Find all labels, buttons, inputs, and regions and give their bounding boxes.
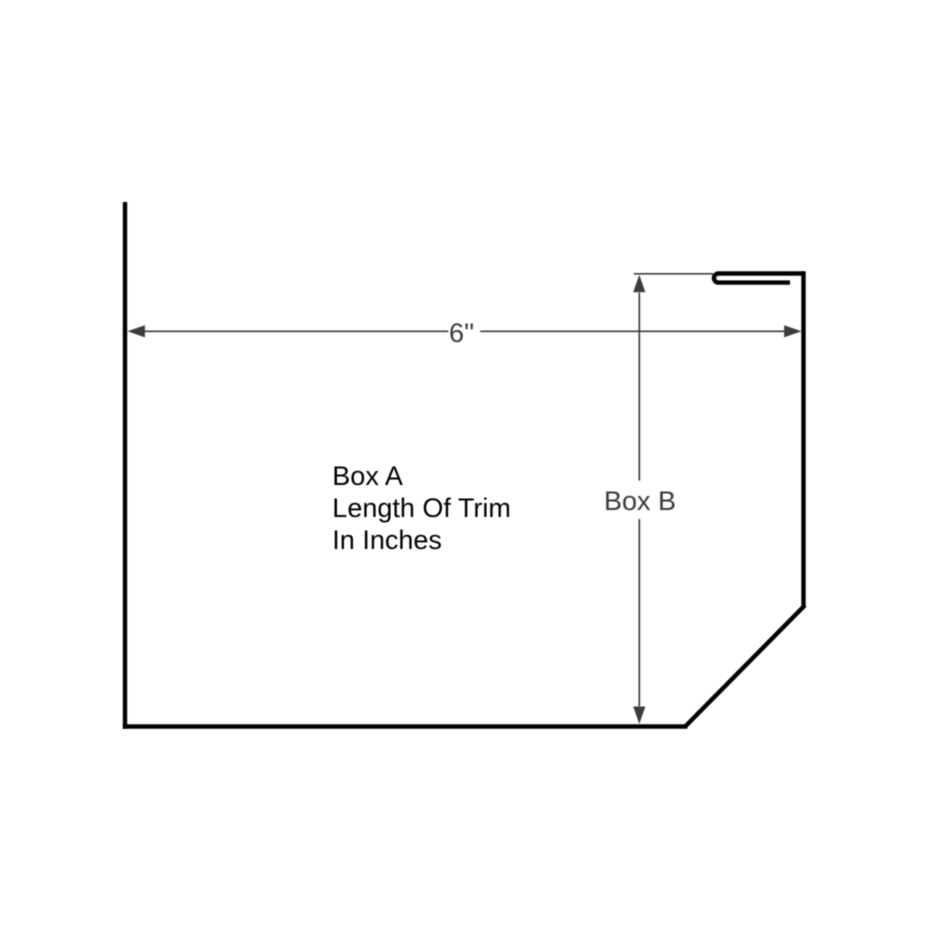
svg-text:Box A: Box A: [332, 461, 403, 491]
svg-text:In Inches: In Inches: [332, 525, 442, 555]
svg-text:Length Of Trim: Length Of Trim: [332, 493, 511, 523]
svg-text:6'': 6'': [449, 318, 474, 348]
svg-text:Box B: Box B: [604, 486, 676, 516]
